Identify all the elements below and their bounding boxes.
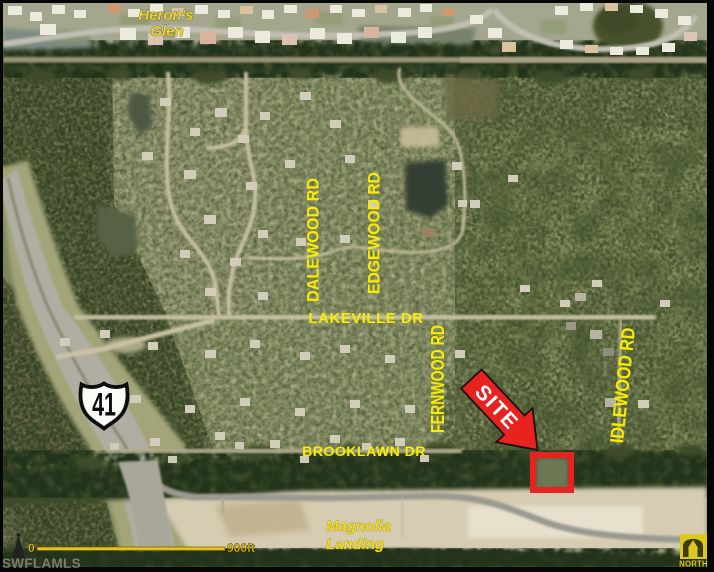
svg-text:Landing: Landing: [326, 536, 384, 553]
svg-text:BROOKLAWN DR: BROOKLAWN DR: [302, 444, 426, 460]
svg-text:NORTH: NORTH: [679, 560, 708, 569]
svg-text:EDGEWOOD RD: EDGEWOOD RD: [365, 172, 384, 294]
svg-text:0: 0: [28, 541, 35, 555]
svg-text:LAKEVILLE DR: LAKEVILLE DR: [308, 310, 423, 327]
svg-text:DALEWOOD RD: DALEWOOD RD: [304, 178, 323, 302]
svg-text:41: 41: [92, 386, 116, 423]
svg-text:Glen: Glen: [150, 23, 183, 40]
svg-text:Heron's: Heron's: [138, 7, 193, 24]
svg-text:900ft: 900ft: [227, 541, 255, 555]
svg-text:FERNWOOD RD: FERNWOOD RD: [428, 325, 448, 433]
svg-text:Magnolia: Magnolia: [326, 518, 391, 535]
svg-text:SWFLAMLS: SWFLAMLS: [2, 556, 81, 571]
